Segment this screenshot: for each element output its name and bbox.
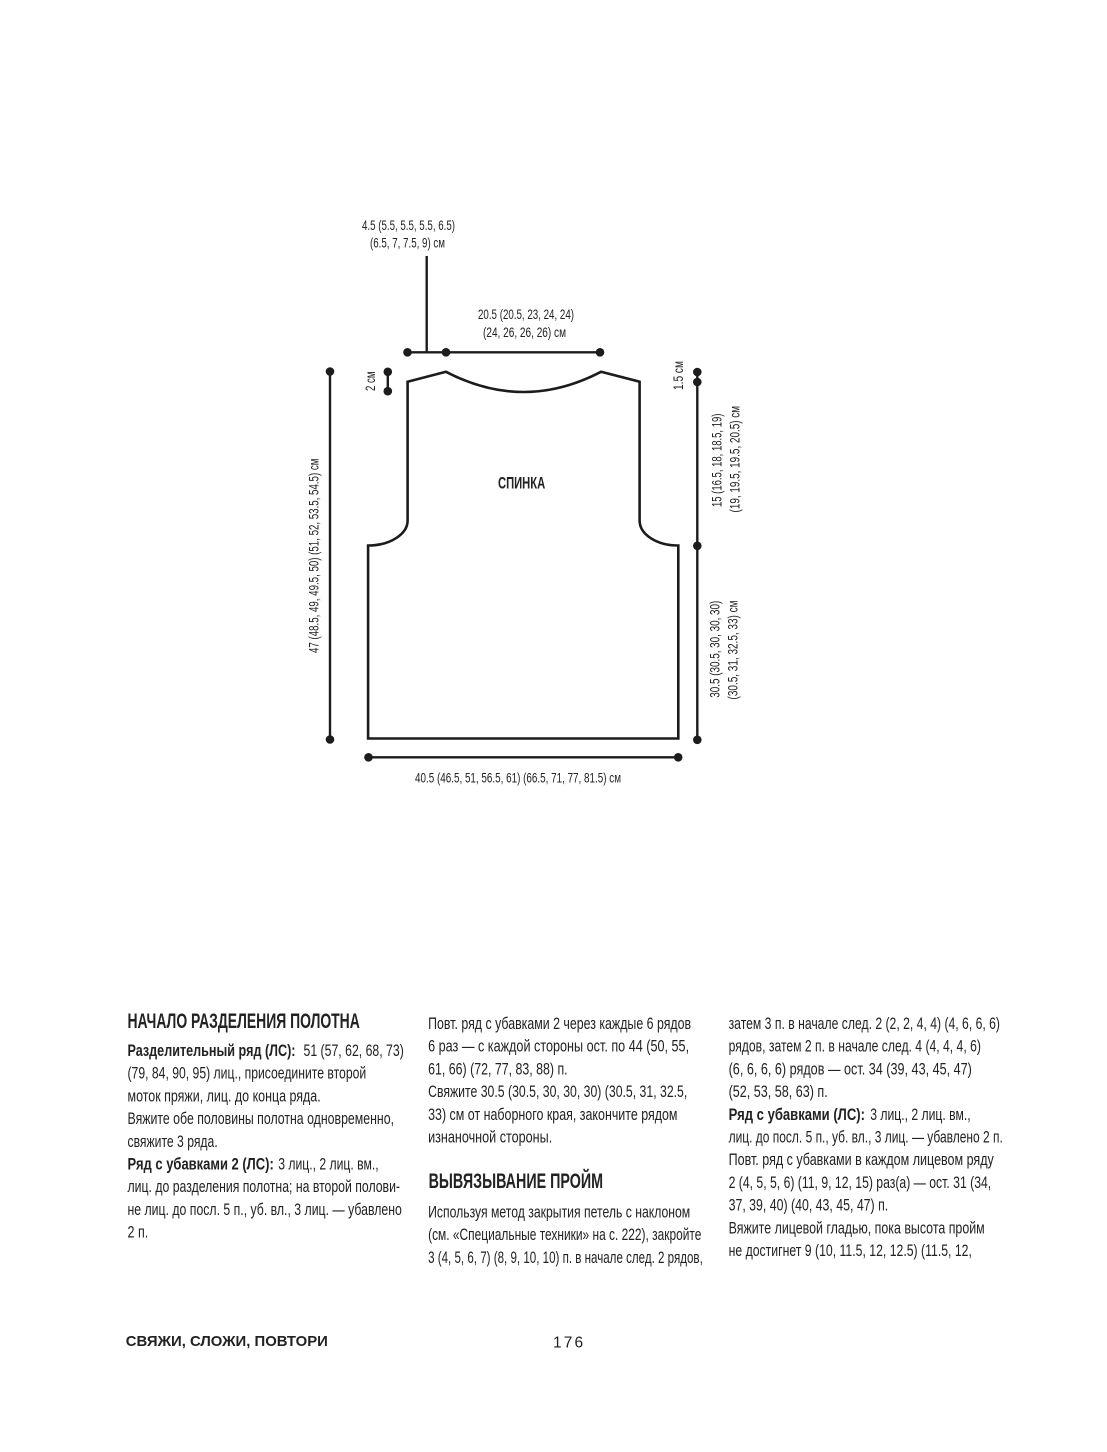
svg-text:3 (4, 5, 6, 7) (8, 9, 10, 10): 3 (4, 5, 6, 7) (8, 9, 10, 10) п. в начал… <box>428 1248 703 1267</box>
svg-text:47 (48.5, 49, 49.5, 50) (51, 5: 47 (48.5, 49, 49.5, 50) (51, 52, 53.5, 5… <box>306 459 322 653</box>
svg-text:лиц. до посл. 5 п., уб. вл., 3: лиц. до посл. 5 п., уб. вл., 3 лиц. — уб… <box>729 1128 1003 1147</box>
svg-text:37, 39, 40) (40, 43, 45, 47) п: 37, 39, 40) (40, 43, 45, 47) п. <box>729 1196 889 1215</box>
svg-text:33) см от наборного края, зако: 33) см от наборного края, закончите рядо… <box>428 1105 677 1124</box>
svg-text:затем 3 п. в начале след. 2 (2: затем 3 п. в начале след. 2 (2, 2, 4, 4)… <box>729 1014 1000 1033</box>
svg-text:40.5 (46.5, 51, 56.5, 61) (66.: 40.5 (46.5, 51, 56.5, 61) (66.5, 71, 77,… <box>415 769 621 785</box>
svg-text:(30.5, 31, 32.5, 33) см: (30.5, 31, 32.5, 33) см <box>725 601 741 700</box>
svg-text:Повт. ряд с убавками 2 через к: Повт. ряд с убавками 2 через каждые 6 ря… <box>428 1014 691 1033</box>
svg-text:4.5 (5.5, 5.5, 5.5, 6.5): 4.5 (5.5, 5.5, 5.5, 6.5) <box>362 217 455 233</box>
svg-text:61, 66) (72, 77, 83, 88) п.: 61, 66) (72, 77, 83, 88) п. <box>428 1059 567 1078</box>
svg-text:СВЯЖИ, СЛОЖИ, ПОВТОРИ: СВЯЖИ, СЛОЖИ, ПОВТОРИ <box>126 1333 328 1350</box>
svg-text:51 (57, 62, 68, 73): 51 (57, 62, 68, 73) <box>304 1041 404 1060</box>
svg-text:3 лиц., 2 лиц. вм.,: 3 лиц., 2 лиц. вм., <box>278 1155 378 1174</box>
svg-text:Свяжите 30.5 (30.5, 30, 30, 30: Свяжите 30.5 (30.5, 30, 30, 30) (30.5, 3… <box>428 1082 687 1101</box>
svg-text:2 п.: 2 п. <box>128 1223 149 1242</box>
svg-text:Ряд с убавками 2 (ЛС):: Ряд с убавками 2 (ЛС): <box>128 1155 274 1174</box>
svg-text:(52, 53, 58, 63) п.: (52, 53, 58, 63) п. <box>729 1082 828 1101</box>
svg-text:15 (16.5, 18, 18.5, 19): 15 (16.5, 18, 18.5, 19) <box>709 414 725 508</box>
svg-text:2 (4, 5, 5, 6) (11, 9, 12, 15): 2 (4, 5, 5, 6) (11, 9, 12, 15) раз(а) — … <box>729 1173 992 1192</box>
svg-text:СПИНКА: СПИНКА <box>498 473 545 492</box>
svg-text:Вяжите обе половины полотна од: Вяжите обе половины полотна одновременно… <box>128 1109 395 1128</box>
svg-text:30.5 (30.5, 30, 30, 30): 30.5 (30.5, 30, 30, 30) <box>707 601 723 698</box>
svg-text:(19, 19.5, 19.5, 20.5) см: (19, 19.5, 19.5, 20.5) см <box>727 406 743 513</box>
svg-text:лиц. до разделения полотна; на: лиц. до разделения полотна; на второй по… <box>128 1177 401 1196</box>
svg-text:моток пряжи, лиц. до конца ряд: моток пряжи, лиц. до конца ряда. <box>128 1086 321 1105</box>
svg-text:1.5 см: 1.5 см <box>670 361 686 390</box>
svg-text:(79, 84, 90, 95) лиц., присоед: (79, 84, 90, 95) лиц., присоедините втор… <box>128 1064 367 1083</box>
svg-text:НАЧАЛО РАЗДЕЛЕНИЯ ПОЛОТНА: НАЧАЛО РАЗДЕЛЕНИЯ ПОЛОТНА <box>128 1010 360 1033</box>
svg-text:Повт. ряд с убавками в каждом: Повт. ряд с убавками в каждом лицевом ря… <box>729 1150 995 1169</box>
svg-text:3 лиц., 2 лиц. вм.,: 3 лиц., 2 лиц. вм., <box>870 1105 970 1124</box>
svg-text:изнаночной стороны.: изнаночной стороны. <box>428 1128 552 1147</box>
svg-text:(24, 26, 26, 26) см: (24, 26, 26, 26) см <box>483 324 566 340</box>
svg-text:не лиц. до посл. 5 п., уб. вл.: не лиц. до посл. 5 п., уб. вл., 3 лиц. —… <box>128 1200 402 1219</box>
svg-text:176: 176 <box>553 1335 585 1352</box>
svg-text:Ряд с убавками (ЛС):: Ряд с убавками (ЛС): <box>729 1105 865 1124</box>
svg-text:ВЫВЯЗЫВАНИЕ ПРОЙМ: ВЫВЯЗЫВАНИЕ ПРОЙМ <box>429 1169 603 1193</box>
svg-text:(см. «Специальные техники» на: (см. «Специальные техники» на с. 222), з… <box>428 1225 701 1244</box>
svg-text:(6, 6, 6, 6) рядов — ост. 34 (: (6, 6, 6, 6) рядов — ост. 34 (39, 43, 45… <box>729 1059 972 1078</box>
svg-text:не достигнет 9 (10, 11.5, 12,: не достигнет 9 (10, 11.5, 12, 12.5) (11.… <box>729 1241 972 1260</box>
svg-text:Используя метод закрытия петел: Используя метод закрытия петель с наклон… <box>428 1203 690 1222</box>
svg-text:6 раз — с каждой стороны ост.: 6 раз — с каждой стороны ост. по 44 (50,… <box>428 1037 689 1056</box>
svg-text:рядов, затем 2 п. в начале сле: рядов, затем 2 п. в начале след. 4 (4, 4… <box>729 1037 981 1056</box>
svg-text:свяжите 3 ряда.: свяжите 3 ряда. <box>128 1132 218 1151</box>
svg-text:20.5 (20.5, 23, 24, 24): 20.5 (20.5, 23, 24, 24) <box>478 306 574 322</box>
svg-text:2 см: 2 см <box>362 372 378 392</box>
svg-text:Вяжите лицевой гладью, пока вы: Вяжите лицевой гладью, пока высота пройм <box>729 1218 985 1237</box>
svg-text:Разделительный ряд (ЛС):: Разделительный ряд (ЛС): <box>128 1041 296 1060</box>
svg-text:(6.5, 7, 7.5, 9) см: (6.5, 7, 7.5, 9) см <box>370 234 445 250</box>
